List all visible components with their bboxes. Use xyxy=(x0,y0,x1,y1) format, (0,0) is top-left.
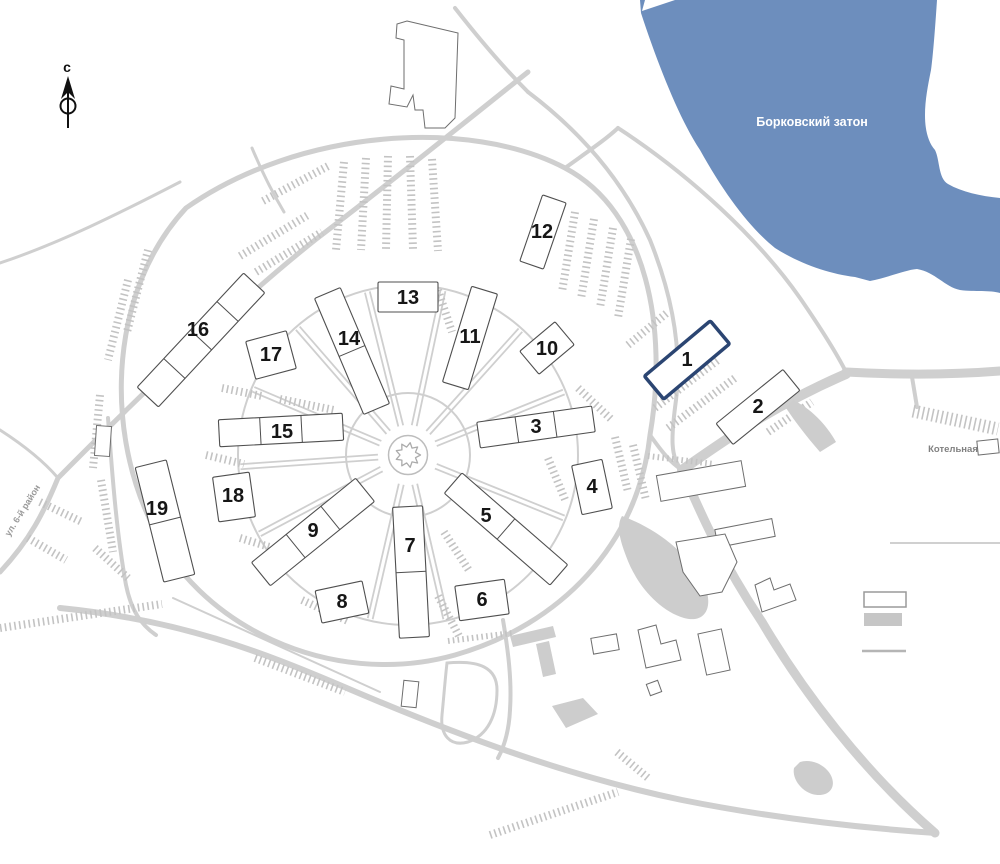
street-label: ул. 6-й район xyxy=(3,483,43,538)
building-unnumbered xyxy=(401,680,419,707)
road xyxy=(846,371,1000,374)
tree-row xyxy=(336,162,344,250)
building-unnumbered xyxy=(389,21,458,128)
tree-row xyxy=(28,538,66,560)
building-12-number: 12 xyxy=(531,221,553,243)
tree-row xyxy=(101,480,113,552)
tree-row xyxy=(628,312,668,345)
building-14-number: 14 xyxy=(338,328,361,350)
building-16-number: 16 xyxy=(187,319,209,341)
tree-row xyxy=(615,437,628,492)
paved-area xyxy=(786,400,836,452)
road xyxy=(0,430,58,478)
compass-north-icon: с xyxy=(61,59,76,128)
water-label: Борковский затон xyxy=(756,115,868,129)
water-layer: Борковский затон xyxy=(640,0,1000,293)
tree-row xyxy=(222,388,262,396)
road xyxy=(565,128,618,168)
tree-row xyxy=(490,792,618,835)
building-7-number: 7 xyxy=(404,535,415,557)
building-unnumbered xyxy=(591,634,619,654)
building-unnumbered xyxy=(755,578,796,612)
water-area xyxy=(640,0,1000,293)
building-unnumbered xyxy=(698,629,730,675)
tree-row xyxy=(40,502,82,522)
road xyxy=(912,377,917,407)
residential-complex-site-plan: Борковский затон 12345678910111213141516… xyxy=(0,0,1000,864)
tree-row xyxy=(256,232,322,272)
building-11-number: 11 xyxy=(459,326,480,348)
paved-area xyxy=(794,761,833,795)
road xyxy=(252,148,284,212)
radial-path xyxy=(240,455,378,465)
building-unnumbered xyxy=(656,461,745,502)
building-5[interactable] xyxy=(444,473,567,585)
paved-area xyxy=(536,641,556,677)
building-17-number: 17 xyxy=(260,344,282,366)
building-1-number: 1 xyxy=(681,349,692,371)
building-6-number: 6 xyxy=(476,589,487,611)
site-plan-page: Борковский затон 12345678910111213141516… xyxy=(0,0,1000,864)
tree-row xyxy=(581,219,594,299)
tree-row xyxy=(240,215,308,256)
tree-row xyxy=(562,212,575,292)
building-10-number: 10 xyxy=(536,338,558,360)
building-unnumbered xyxy=(977,439,999,455)
tree-row xyxy=(617,752,648,778)
building-5-number: 5 xyxy=(480,505,491,527)
road xyxy=(108,418,156,635)
building-3-number: 3 xyxy=(530,416,541,438)
building-9-number: 9 xyxy=(307,520,318,542)
road xyxy=(650,435,682,470)
building-19[interactable] xyxy=(135,460,195,582)
tree-row xyxy=(444,532,470,572)
legend xyxy=(862,543,1000,651)
building-unnumbered xyxy=(638,625,681,668)
tree-row xyxy=(255,658,345,692)
building-18-number: 18 xyxy=(222,485,244,507)
building-7[interactable] xyxy=(393,506,430,638)
tree-row xyxy=(913,411,998,429)
tree-row xyxy=(548,458,566,502)
road xyxy=(455,8,528,92)
tree-row xyxy=(410,156,413,249)
building-8-number: 8 xyxy=(336,591,347,613)
central-roundabout xyxy=(389,436,428,475)
boiler-house-label: Котельная xyxy=(928,444,978,455)
building-unnumbered xyxy=(646,680,661,695)
tree-row xyxy=(263,165,330,201)
radial-path xyxy=(241,460,379,470)
tree-row xyxy=(618,239,631,318)
building-2-number: 2 xyxy=(752,396,763,418)
building-unnumbered xyxy=(94,426,111,457)
legend-building-outline-swatch xyxy=(864,592,906,607)
compass-letter: с xyxy=(63,59,71,75)
building-13-number: 13 xyxy=(397,287,419,309)
tree-row xyxy=(432,159,438,251)
building-15-number: 15 xyxy=(271,421,293,443)
building-4-number: 4 xyxy=(586,476,598,498)
tree-row xyxy=(600,228,613,308)
building-19-number: 19 xyxy=(146,498,168,520)
legend-area-swatch xyxy=(864,613,902,626)
tree-row xyxy=(386,156,388,249)
paved-area xyxy=(552,698,598,728)
